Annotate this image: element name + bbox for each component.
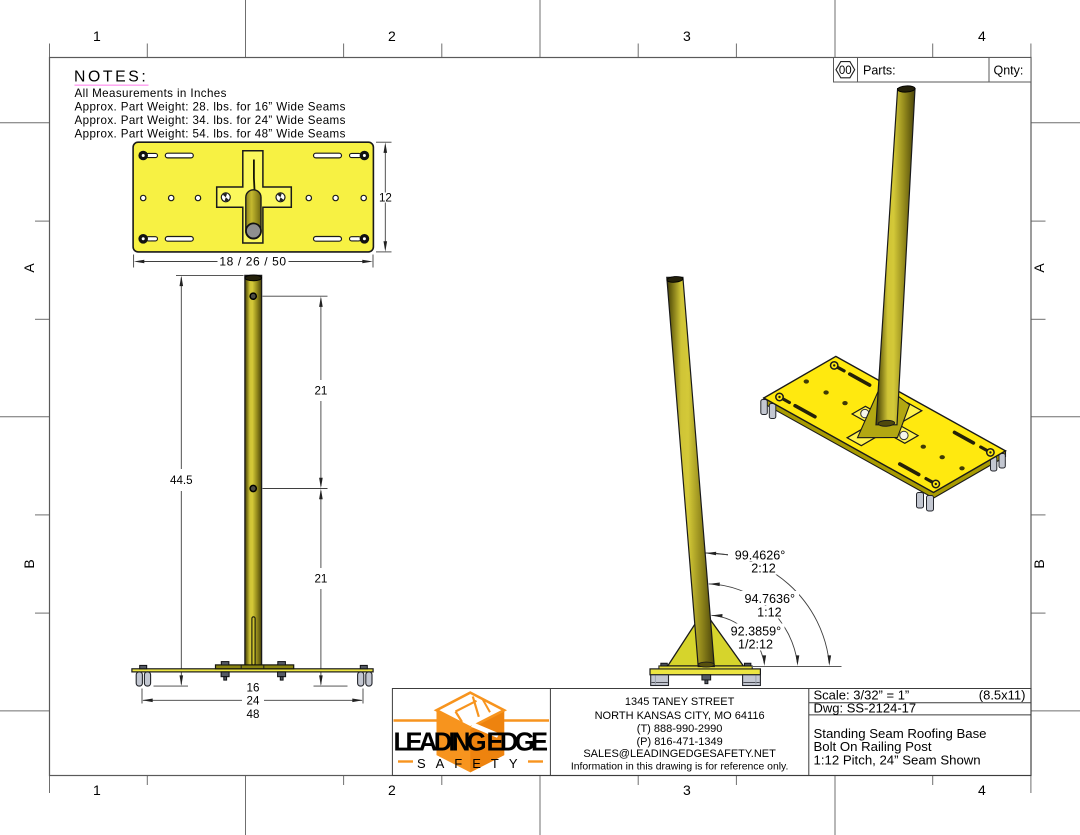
svg-text:B: B (1031, 559, 1047, 568)
svg-text:Parts:: Parts: (863, 64, 896, 78)
svg-text:4: 4 (978, 28, 986, 44)
svg-text:SALES@LEADINGEDGESAFETY.NET: SALES@LEADINGEDGESAFETY.NET (583, 748, 776, 760)
svg-text:Approx. Part Weight: 28. lbs.: Approx. Part Weight: 28. lbs. for 16” Wi… (75, 101, 346, 114)
svg-text:Qnty:: Qnty: (994, 64, 1024, 78)
svg-text:1:12 Pitch, 24” Seam Shown: 1:12 Pitch, 24” Seam Shown (814, 752, 981, 767)
svg-text:(P) 816-471-1349: (P) 816-471-1349 (636, 736, 722, 748)
svg-text:Approx. Part Weight: 34. lbs.: Approx. Part Weight: 34. lbs. for 24” Wi… (75, 114, 346, 127)
svg-text:(8.5x11): (8.5x11) (979, 688, 1026, 703)
svg-text:92.3859°: 92.3859° (731, 624, 782, 638)
svg-text:4: 4 (978, 782, 986, 798)
svg-text:48: 48 (247, 708, 260, 721)
svg-text:18 / 26 / 50: 18 / 26 / 50 (219, 255, 286, 269)
svg-text:21: 21 (314, 573, 327, 586)
svg-text:1345 TANEY STREET: 1345 TANEY STREET (625, 696, 735, 708)
svg-text:NOTES:: NOTES: (74, 69, 148, 86)
svg-text:A: A (1031, 263, 1047, 273)
svg-text:16: 16 (247, 681, 260, 694)
svg-text:1: 1 (93, 782, 101, 798)
svg-text:LEADING EDGE: LEADING EDGE (394, 729, 548, 757)
svg-text:Approx. Part Weight: 54. lbs.: Approx. Part Weight: 54. lbs. for 48” Wi… (75, 128, 346, 141)
svg-text:44.5: 44.5 (170, 474, 193, 487)
svg-text:99.4626°: 99.4626° (735, 548, 786, 562)
svg-text:3: 3 (683, 782, 691, 798)
svg-text:3: 3 (683, 28, 691, 44)
svg-text:12: 12 (379, 192, 392, 205)
svg-text:B: B (21, 559, 37, 568)
svg-text:1: 1 (93, 28, 101, 44)
svg-text:NORTH KANSAS CITY, MO 64116: NORTH KANSAS CITY, MO 64116 (595, 710, 765, 722)
svg-text:24: 24 (247, 695, 260, 708)
svg-text:(T) 888-990-2990: (T) 888-990-2990 (637, 723, 723, 735)
svg-text:00: 00 (839, 65, 852, 77)
svg-text:2: 2 (388, 782, 396, 798)
svg-text:Information in this drawing is: Information in this drawing is for refer… (571, 762, 789, 773)
svg-text:Dwg: SS-2124-17: Dwg: SS-2124-17 (814, 701, 917, 716)
svg-text:A: A (21, 263, 37, 273)
svg-text:94.7636°: 94.7636° (745, 592, 796, 606)
svg-text:All Measurements in Inches: All Measurements in Inches (75, 87, 227, 100)
svg-text:2: 2 (388, 28, 396, 44)
svg-text:1:12: 1:12 (757, 605, 782, 619)
svg-text:1/2:12: 1/2:12 (738, 637, 773, 651)
svg-text:2:12: 2:12 (751, 561, 776, 575)
svg-text:21: 21 (314, 385, 327, 398)
